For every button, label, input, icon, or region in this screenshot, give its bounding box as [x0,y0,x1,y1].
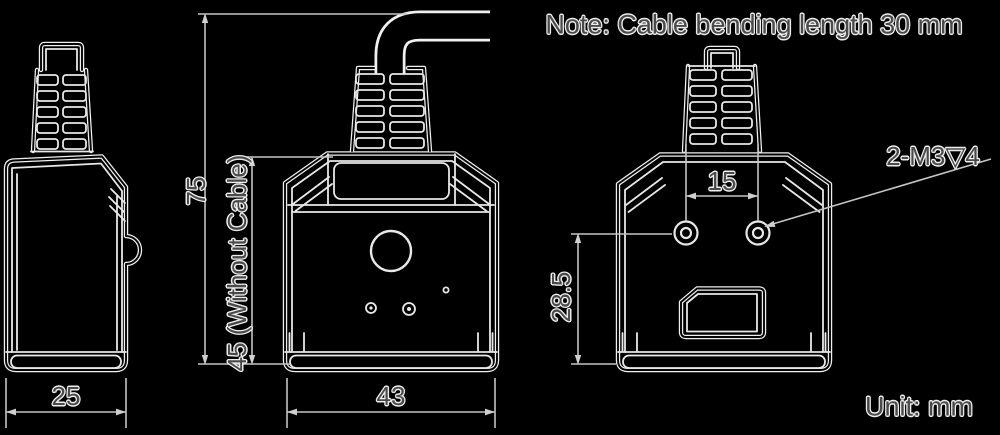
total-height-dimension: 75 [183,177,209,206]
front-width-dimension: 43 [377,383,406,409]
hole-offset-dimension: 28.5 [548,272,574,323]
side-relief-ribs [37,75,86,149]
note-label: Note: Cable bending length 30 mm [545,12,962,39]
body-height-dimension: 45 (Without Cable) [224,155,250,372]
hole-spacing-dimension: 15 [708,168,737,194]
front-window [334,163,449,199]
side-width-dimension: 25 [52,383,81,409]
technical-drawing-page: Note: Cable bending length 30 mm 75 45 (… [0,0,1000,435]
front-relief-ribs [356,74,424,148]
drawing-artwork [0,0,1000,435]
screw-holes [675,222,770,245]
detail-lines [6,49,830,368]
device-outlines [6,44,830,370]
indicator-dot [443,287,448,292]
unit-label: Unit: mm [865,394,973,421]
cable [390,26,490,74]
back-relief-ribs [690,70,752,144]
thread-spec-label: 2-M3▽4 [886,143,980,169]
lens-circle [371,231,411,271]
